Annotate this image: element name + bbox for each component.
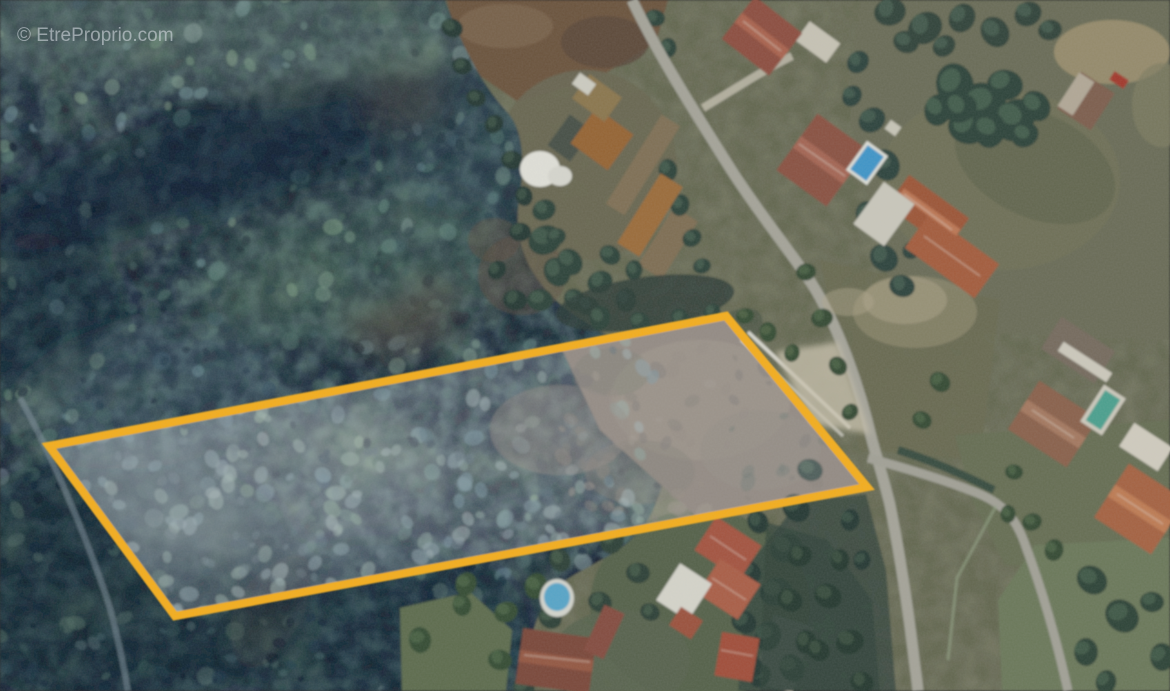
svg-text:© EtreProprio.com: © EtreProprio.com [17,25,174,46]
